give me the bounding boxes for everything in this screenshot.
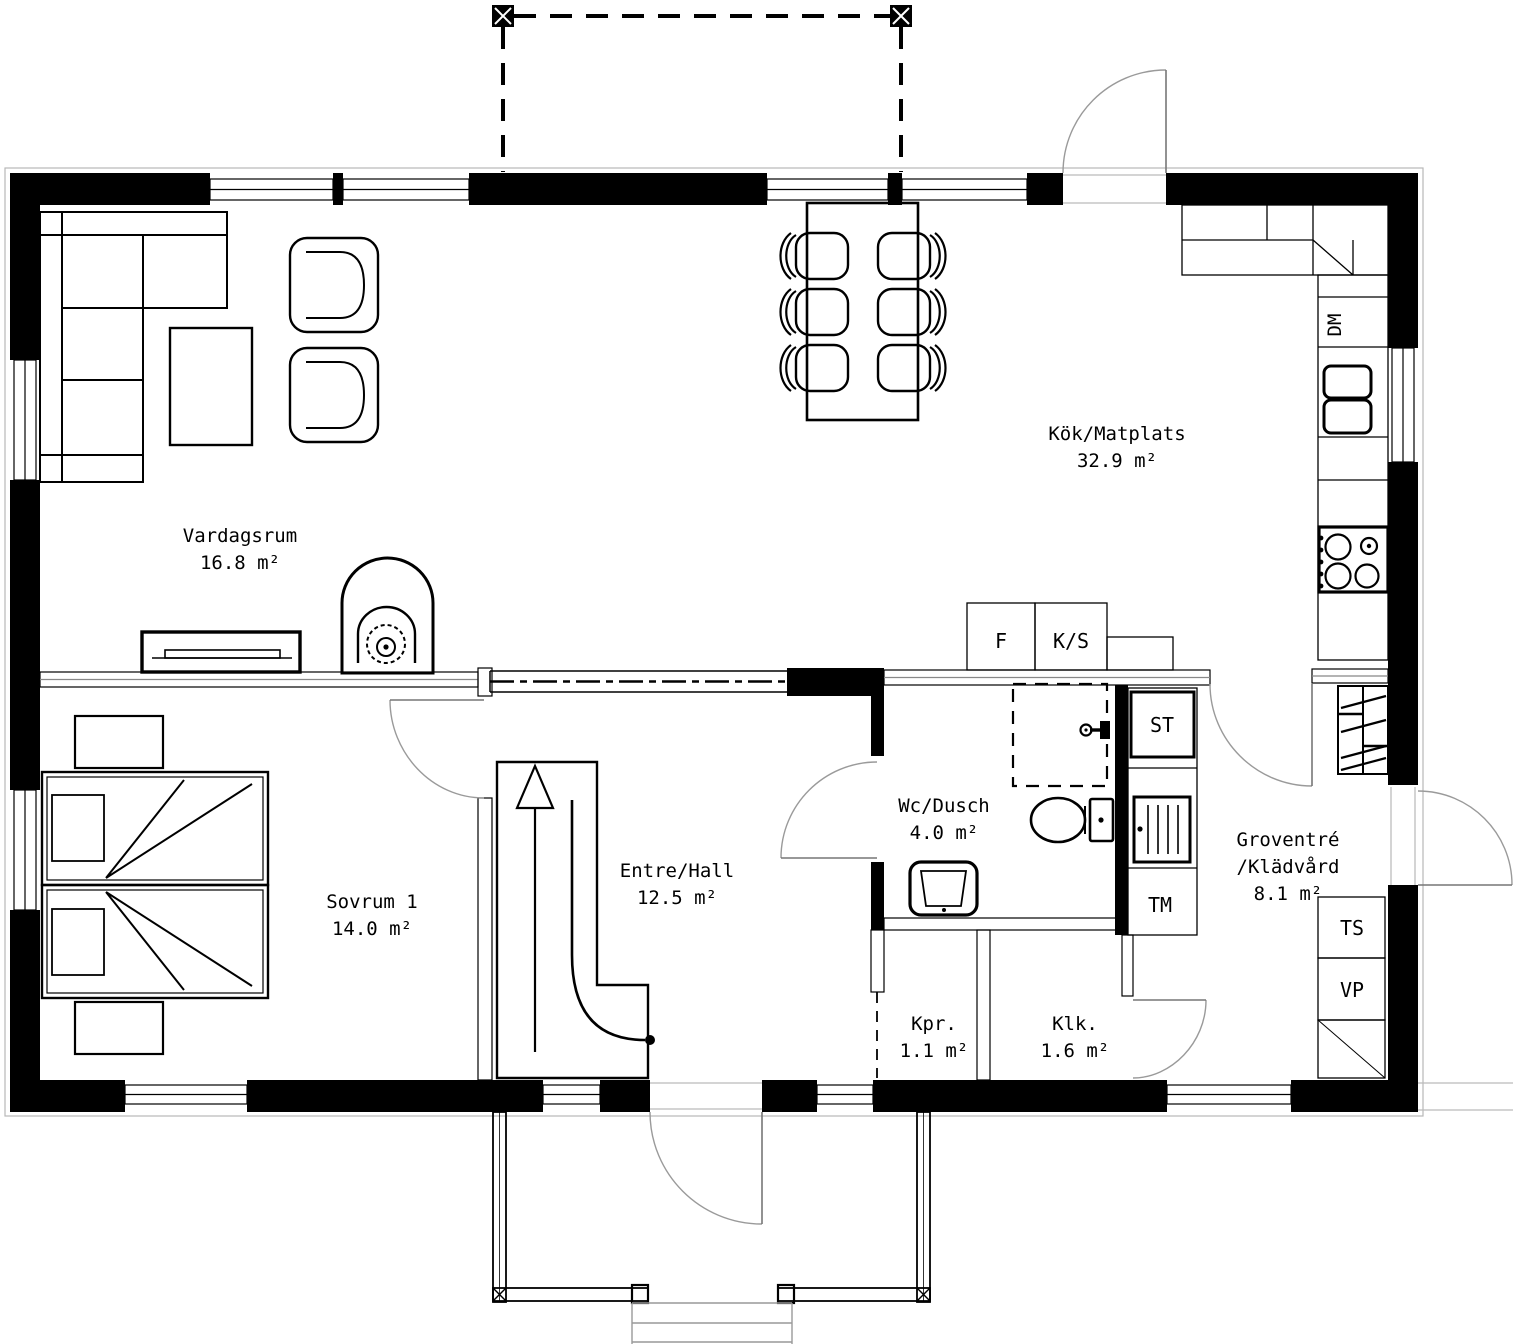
window-bottom-bedroom: [125, 1085, 247, 1104]
svg-text:Kpr.: Kpr.: [911, 1013, 957, 1035]
window-left-bedroom: [14, 790, 36, 910]
pillow-1: [52, 795, 104, 861]
wall-st-column: [1115, 685, 1128, 935]
porch-rail-left: [493, 1285, 648, 1303]
svg-text:1.1 m²: 1.1 m²: [900, 1040, 969, 1062]
corner-cabinet: [1318, 1020, 1385, 1078]
dining-chair-3: [781, 345, 849, 391]
groventre-exterior-door: [1391, 787, 1512, 885]
deck: [492, 5, 912, 172]
wall-kitchen-groventre: [1312, 669, 1388, 683]
wall-wc-bottom: [884, 918, 1122, 930]
svg-text:/Klädvård: /Klädvård: [1237, 855, 1340, 878]
wall-hall-wc-lower: [871, 862, 884, 930]
dining-table: [807, 203, 918, 420]
svg-text:14.0 m²: 14.0 m²: [332, 918, 412, 940]
window-bottom-hall-left: [543, 1085, 600, 1104]
shower-head: [1081, 721, 1111, 739]
washbasin: [910, 862, 977, 915]
tv-bench: [142, 632, 300, 672]
wall-klk-right: [1122, 935, 1133, 996]
deck-post-right: [890, 5, 912, 27]
bedroom-door: [390, 700, 484, 798]
tv: [165, 650, 280, 658]
sliding-door: [490, 671, 787, 692]
svg-text:12.5 m²: 12.5 m²: [637, 887, 717, 909]
window-left-living: [14, 360, 36, 480]
window-top-dining-2: [902, 179, 1027, 200]
windows: [14, 179, 1414, 1104]
kitchen-side-cabinet: [1107, 637, 1173, 670]
svg-text:16.8 m²: 16.8 m²: [200, 552, 280, 574]
klk-door: [1133, 1000, 1206, 1078]
wc-door: [781, 762, 877, 858]
dining-chair-6: [878, 345, 946, 391]
toilet: [1031, 798, 1113, 842]
nightstand-2: [75, 1002, 163, 1054]
handrail: [572, 800, 645, 1040]
dining-chair-1: [781, 233, 849, 279]
svg-text:Klk.: Klk.: [1052, 1013, 1098, 1035]
utility-fixtures: [1128, 686, 1388, 1078]
wall-bedroom-hall: [478, 668, 492, 1080]
window-bottom-groventre: [1167, 1085, 1291, 1104]
porch-post-left: [493, 1112, 506, 1302]
window-bottom-hall-right: [817, 1085, 873, 1104]
svg-text:8.1 m²: 8.1 m²: [1254, 883, 1323, 905]
wall-kpr-klk: [977, 930, 990, 1080]
svg-text:Groventré: Groventré: [1237, 829, 1340, 851]
pillow-2: [52, 909, 104, 975]
deck-post-left: [492, 5, 514, 27]
drying-cabinet-label: TS: [1340, 916, 1364, 940]
living-room-furniture: [40, 212, 433, 673]
shower: [1013, 684, 1107, 786]
duvet-fold-1: [106, 780, 252, 878]
label-wc-dusch: Wc/Dusch 4.0 m²: [898, 795, 990, 844]
svg-text:Vardagsrum: Vardagsrum: [183, 525, 297, 547]
svg-text:32.9 m²: 32.9 m²: [1077, 450, 1157, 472]
wall-hall-wc-upper: [871, 696, 884, 756]
label-groventre: Groventré /Klädvård 8.1 m²: [1237, 829, 1340, 905]
label-vardagsrum: Vardagsrum 16.8 m²: [183, 525, 297, 574]
dining-chair-2: [781, 289, 849, 335]
svg-text:Entre/Hall: Entre/Hall: [620, 860, 734, 882]
window-right-kitchen: [1392, 348, 1414, 462]
window-top-living-1: [210, 179, 333, 200]
entry-door-top: [1063, 70, 1166, 203]
front-door: [650, 1083, 762, 1224]
wall-stub: [787, 668, 884, 696]
duvet-fold-2: [106, 892, 252, 990]
nightstand-1: [75, 716, 163, 768]
corner-sofa: [40, 212, 227, 482]
bed-1: [42, 772, 268, 885]
floor-plan-svg: Vardagsrum 16.8 m² Kök/Matplats 32.9 m² …: [0, 0, 1513, 1344]
window-top-dining-1: [767, 179, 888, 200]
room-labels: Vardagsrum 16.8 m² Kök/Matplats 32.9 m² …: [183, 423, 1340, 1062]
coffee-table: [170, 328, 252, 445]
label-kpr: Kpr. 1.1 m²: [900, 1013, 969, 1062]
window-top-living-2: [343, 179, 469, 200]
coat-rack: [1338, 686, 1388, 774]
svg-text:4.0 m²: 4.0 m²: [910, 822, 979, 844]
svg-text:1.6 m²: 1.6 m²: [1041, 1040, 1110, 1062]
label-entre-hall: Entre/Hall 12.5 m²: [620, 860, 734, 909]
label-kok-matplats: Kök/Matplats 32.9 m²: [1048, 423, 1185, 472]
svg-text:Wc/Dusch: Wc/Dusch: [898, 795, 990, 817]
exterior-walls: [10, 173, 1418, 1112]
floor-plan-page: Vardagsrum 16.8 m² Kök/Matplats 32.9 m² …: [0, 0, 1513, 1344]
svg-text:Sovrum 1: Sovrum 1: [326, 891, 418, 913]
fridge-label: F: [995, 629, 1007, 653]
porch-rail-right: [778, 1285, 930, 1303]
armchair-1: [290, 238, 378, 332]
dining-chair-5: [878, 289, 946, 335]
staircase: [497, 762, 655, 1078]
handrail-end: [645, 1035, 655, 1045]
groventre-inner-door: [1210, 684, 1312, 786]
wall-kpr-left: [871, 930, 884, 1078]
label-klk: Klk. 1.6 m²: [1041, 1013, 1110, 1062]
heat-pump-label: VP: [1340, 978, 1364, 1002]
porch-post-right: [917, 1112, 930, 1302]
dining-group: [781, 203, 946, 420]
kitchen-sink: [1324, 366, 1371, 433]
dishwasher-label: DM: [1324, 314, 1346, 337]
freezer-pantry-label: K/S: [1053, 629, 1089, 653]
facade-outline: [5, 168, 1423, 1116]
stair-direction-arrow: [517, 766, 553, 1052]
porch: [493, 1112, 930, 1344]
label-sovrum-1: Sovrum 1 14.0 m²: [326, 891, 418, 940]
bedroom-furniture: [42, 716, 268, 1054]
fireplace: [342, 558, 433, 673]
armchair-2: [290, 348, 378, 442]
washing-machine: [1134, 797, 1190, 862]
svg-text:Kök/Matplats: Kök/Matplats: [1048, 423, 1185, 445]
porch-steps: [632, 1303, 792, 1344]
wall-kitchen-wc: [884, 670, 1210, 685]
stove: [1319, 527, 1388, 592]
bed-2: [42, 885, 268, 998]
washing-machine-label: TM: [1148, 893, 1172, 917]
cleaning-cabinet-label: ST: [1150, 713, 1174, 737]
dining-chair-4: [878, 233, 946, 279]
